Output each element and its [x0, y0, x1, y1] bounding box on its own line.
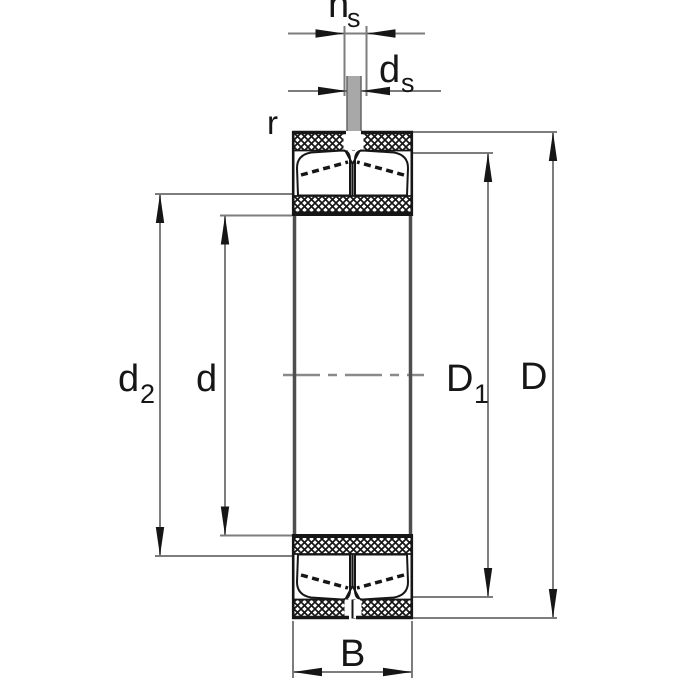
- D1-arrow-down: [484, 568, 492, 597]
- D-arrow-up: [549, 132, 557, 161]
- d2-arrow-up: [156, 194, 164, 223]
- label-d2: d: [118, 358, 139, 400]
- ds-arrow-left: [318, 87, 347, 95]
- label-D1-subscript: 1: [474, 379, 489, 409]
- label-d2-subscript: 2: [140, 379, 155, 409]
- ns-arrow-right: [367, 29, 396, 37]
- D-arrow-down: [549, 589, 557, 618]
- D1-arrow-up: [484, 153, 492, 182]
- label-D1: D: [446, 358, 473, 400]
- label-d: d: [196, 358, 217, 400]
- bearing-bottom-section: [292, 534, 413, 619]
- label-ds-subscript: s: [401, 68, 415, 98]
- d2-arrow-down: [156, 527, 164, 556]
- bore-line-bottom: [292, 534, 413, 539]
- label-ds: d: [379, 49, 400, 91]
- technical-drawing-canvas: n s d s r d 2 d D 1 D B: [0, 0, 680, 680]
- B-arrow-right: [383, 668, 412, 676]
- label-r: r: [267, 104, 278, 141]
- label-D: D: [520, 356, 547, 398]
- inner-ring-top-hatch: [293, 196, 412, 212]
- d-arrow-down: [221, 507, 229, 536]
- B-arrow-left: [293, 668, 322, 676]
- ns-arrow-left: [316, 29, 345, 37]
- label-ns-subscript: s: [347, 3, 361, 33]
- bearing-dimension-diagram: n s d s r d 2 d D 1 D B: [0, 0, 680, 680]
- outer-ring-top-groove-gap: [344, 131, 364, 151]
- inner-ring-bottom-hatch: [293, 538, 412, 554]
- d-arrow-up: [221, 216, 229, 245]
- label-B: B: [340, 633, 365, 675]
- bearing-top-section: [292, 131, 413, 216]
- bore-line-top: [292, 212, 413, 217]
- label-ns: n: [328, 0, 349, 26]
